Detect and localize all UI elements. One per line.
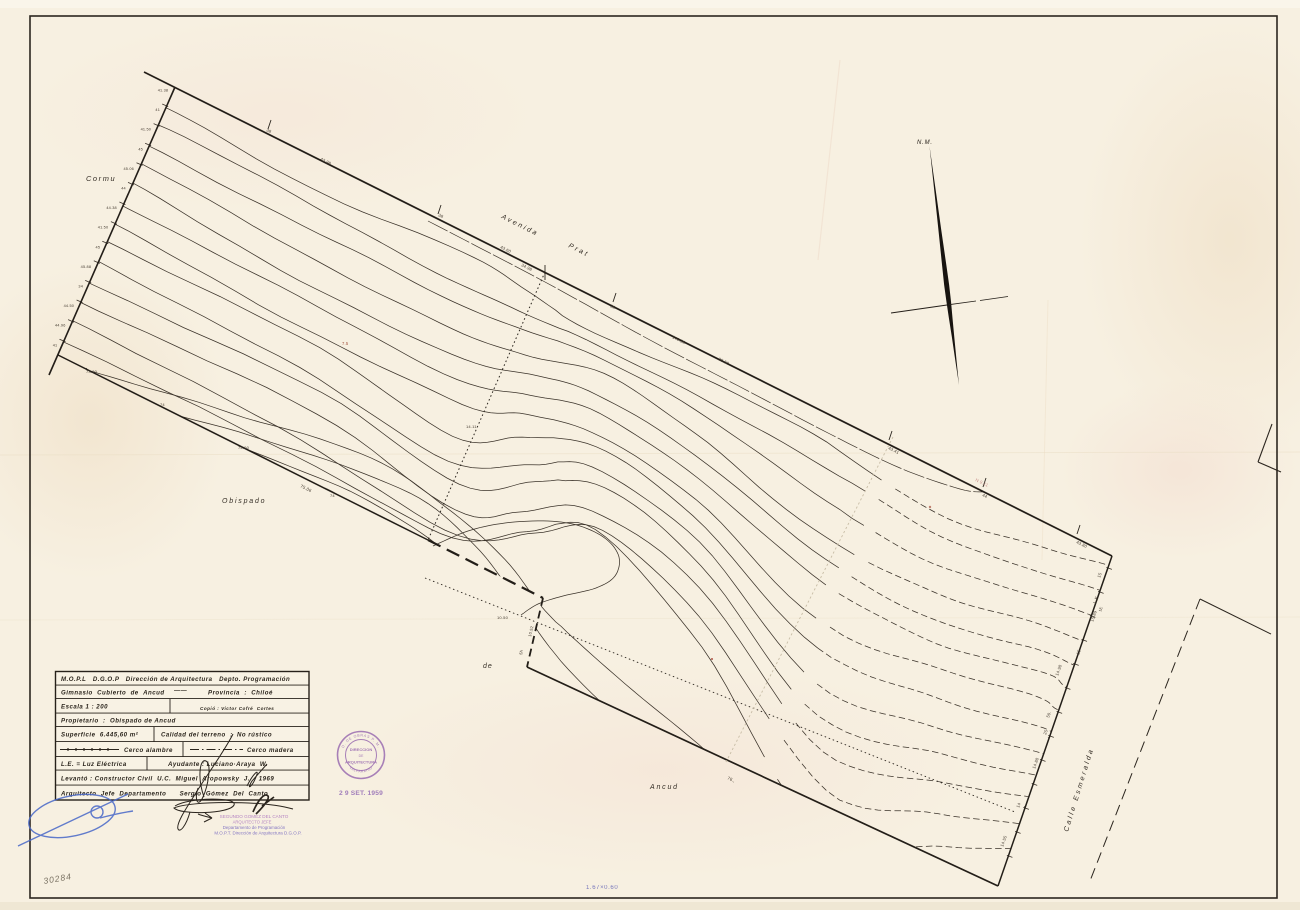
svg-text:Escala 1 : 200: Escala 1 : 200 [61, 704, 108, 711]
svg-text:——: —— [173, 687, 188, 694]
svg-text:DE: DE [359, 754, 364, 758]
svg-text:44.50: 44.50 [64, 304, 75, 308]
svg-text:DIRECCION: DIRECCION [350, 747, 373, 752]
svg-text:de: de [483, 663, 493, 670]
svg-text:41.50: 41.50 [98, 226, 109, 230]
svg-text:Cerco alambre: Cerco alambre [124, 747, 173, 754]
svg-text:Gimnasio Cubierto de Ancud: Gimnasio Cubierto de Ancud [61, 690, 165, 697]
svg-text:45: 45 [96, 245, 101, 249]
svg-text:Levantó : Constructor Civil U: Levantó : Constructor Civil U.C. Miguel … [61, 776, 274, 783]
svg-text:7.5: 7.5 [342, 341, 349, 346]
svg-text:41.38: 41.38 [158, 89, 169, 93]
svg-text:M.O.P.T. Dirección de Arquitec: M.O.P.T. Dirección de Arquitectura D.G.O… [214, 831, 301, 836]
svg-text:Superficie 6.445,60 m²: Superficie 6.445,60 m² [61, 732, 139, 739]
svg-text:Calidad del terreno : No rús: Calidad del terreno : No rústico [161, 732, 272, 739]
svg-text:Obispado: Obispado [222, 498, 266, 505]
svg-text:41: 41 [155, 108, 160, 112]
svg-text:Ayudante : Luciano·Araya W.: Ayudante : Luciano·Araya W. [167, 761, 268, 768]
svg-text:41: 41 [53, 343, 58, 347]
svg-text:Provincia : Chiloé: Provincia : Chiloé [208, 690, 273, 697]
svg-text:Departamento de Programación: Departamento de Programación [223, 825, 286, 830]
svg-text:45.88: 45.88 [81, 265, 92, 269]
svg-text:44: 44 [121, 187, 126, 191]
svg-text:45: 45 [138, 147, 143, 151]
svg-text:L.E. = Luz Eléctrica: L.E. = Luz Eléctrica [61, 761, 127, 768]
svg-text:Ancud: Ancud [649, 784, 679, 791]
svg-text:41.50: 41.50 [141, 128, 152, 132]
svg-text:Propietario : Obispado de An: Propietario : Obispado de Ancud [61, 718, 176, 725]
svg-text:10.50: 10.50 [497, 615, 509, 620]
svg-text:74: 74 [160, 402, 165, 407]
svg-text:44.38: 44.38 [106, 206, 117, 210]
svg-text:34: 34 [78, 285, 83, 289]
svg-text:ARQUITECTO JEFE: ARQUITECTO JEFE [233, 820, 272, 825]
svg-text:Cormu: Cormu [86, 174, 116, 183]
svg-text:M.O.P.L D.G.O.P Dirección: M.O.P.L D.G.O.P Dirección de Arquitectur… [61, 676, 290, 683]
svg-text:14.11: 14.11 [466, 424, 477, 429]
svg-text:73.00: 73.00 [86, 369, 98, 374]
svg-text:Cerco madera: Cerco madera [247, 747, 294, 754]
svg-text:Copió : Victor Cofré Cortes: Copió : Victor Cofré Cortes [200, 706, 274, 711]
svg-text:SEGUNDO GOMEZ DEL CANTO: SEGUNDO GOMEZ DEL CANTO [220, 814, 289, 819]
svg-text:1.67×0.60: 1.67×0.60 [586, 885, 618, 891]
svg-text:45.06: 45.06 [123, 167, 134, 171]
svg-text:N.M.: N.M. [917, 140, 933, 146]
svg-text:2 9 SET. 1959: 2 9 SET. 1959 [339, 790, 383, 797]
svg-text:74.00: 74.00 [238, 445, 250, 450]
svg-text:74: 74 [330, 493, 335, 498]
svg-text:ARQUITECTURA: ARQUITECTURA [345, 760, 377, 765]
svg-text:44.96: 44.96 [55, 324, 66, 328]
